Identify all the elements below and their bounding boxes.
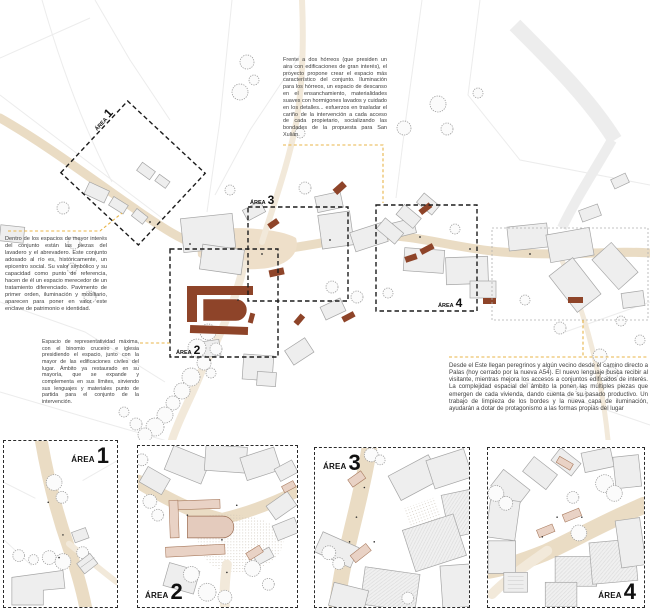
detail-panel-area4: ÁREA 4 <box>487 447 645 608</box>
annotation-horreos: Frente a dos hórreos (que presiden un ai… <box>283 57 387 139</box>
church-complex <box>187 286 253 335</box>
annotation-peregrinos: Desde el Este llegan peregrinos y algún … <box>449 362 648 412</box>
area3-map-label: ÁREA3 <box>250 193 275 207</box>
detail-panel-area2: ÁREA 2 <box>137 445 298 608</box>
area4-map-label: ÁREA4 <box>438 296 463 310</box>
area2-panel-label: ÁREA 2 <box>145 583 183 602</box>
annotation-lavadero: Dentro de los espacios de mayor interés … <box>5 236 107 314</box>
area1-panel-label: ÁREA 1 <box>71 447 109 466</box>
area3-panel-label: ÁREA 3 <box>323 454 361 473</box>
area2-map-label: ÁREA2 <box>176 343 201 357</box>
area4-panel-label: ÁREA 4 <box>598 583 636 602</box>
annotation-cruceiro-iglesia: Espacio de representatividad máxima, con… <box>42 339 139 406</box>
site-plan-poster: ÁREA1 ÁREA2 ÁREA3 ÁREA4 Frente a dos hór… <box>0 0 650 611</box>
detail-panel-area1: ÁREA 1 <box>3 440 118 608</box>
detail-panel-area3: ÁREA 3 <box>314 447 470 608</box>
area-boxes <box>61 101 648 357</box>
